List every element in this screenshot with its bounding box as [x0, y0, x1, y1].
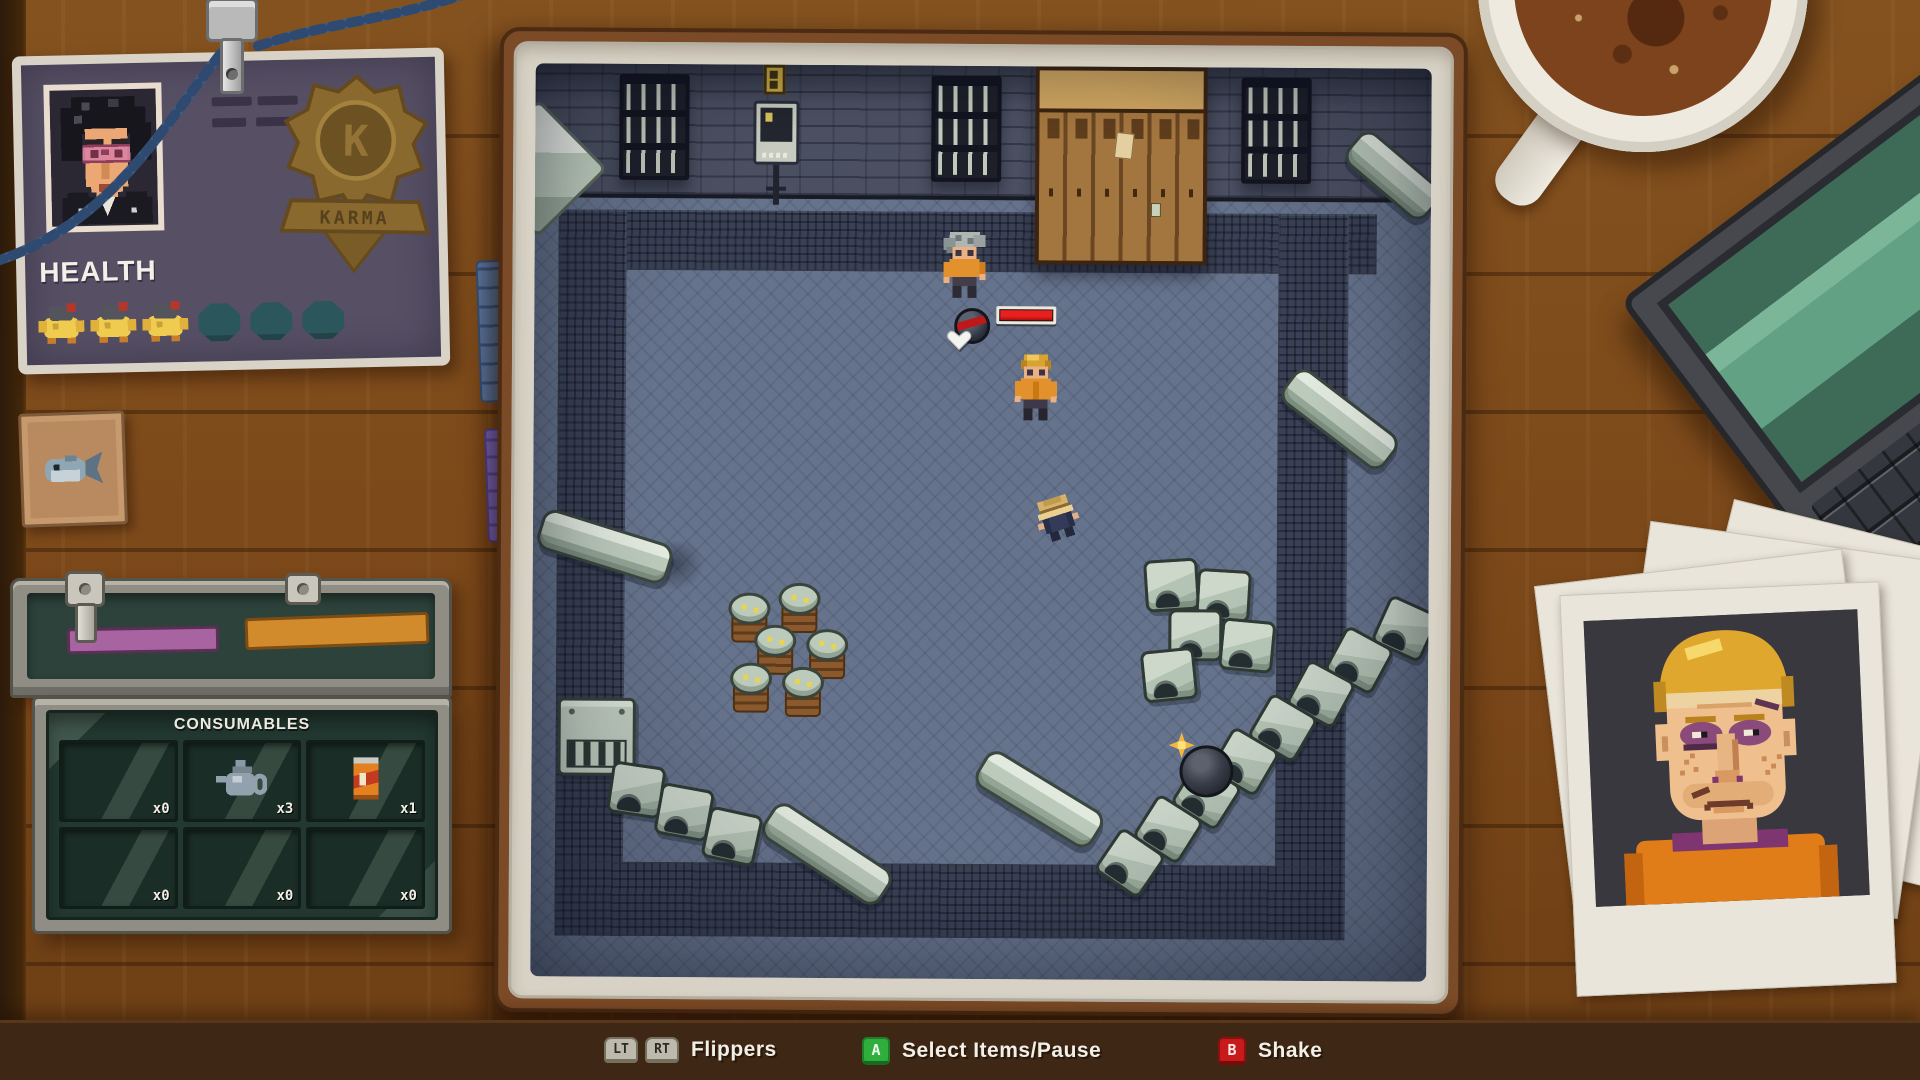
polaroid-target-photo: [1559, 581, 1896, 997]
security-monitor: [753, 101, 799, 165]
crate: [1218, 617, 1277, 674]
prison-wall: [535, 63, 1432, 202]
hint-select: A Select Items/Pause: [862, 1037, 1101, 1065]
inventory-slot-soda[interactable]: x1: [306, 740, 425, 822]
prisoner-blond-sprite: [1012, 354, 1060, 420]
b-button-label: B: [1227, 1041, 1236, 1059]
rt-button-label: RT: [654, 1042, 670, 1057]
locker-note-small: [1151, 203, 1161, 217]
game-viewport[interactable]: [530, 63, 1432, 981]
barred-window: [931, 76, 1002, 182]
case-latch: [285, 573, 321, 605]
gutter-left: [554, 209, 626, 935]
consumables-case: CONSUMABLES x0 x3 x1 x0: [8, 570, 464, 942]
crate: [700, 805, 764, 867]
bomb: [1179, 745, 1233, 797]
inventory-slot[interactable]: x0: [59, 740, 178, 822]
gutter-right: [1274, 214, 1348, 940]
inventory-title: CONSUMABLES: [46, 716, 438, 734]
inventory-grid: x0 x3 x1 x0 x0: [59, 740, 425, 909]
a-button: A: [862, 1037, 890, 1065]
hint-shake-label: Shake: [1258, 1039, 1322, 1063]
fish-icon: [38, 440, 110, 494]
barred-window: [1241, 78, 1312, 184]
slot-count: x0: [153, 888, 170, 904]
monitor-pole: [773, 165, 779, 205]
barred-window: [619, 74, 690, 180]
health-label: HEALTH: [39, 255, 157, 289]
slot-count: x3: [276, 801, 293, 817]
polaroid-stack: [1540, 538, 1920, 1008]
slot-count: x0: [153, 801, 170, 817]
health-empty-slot: [198, 303, 241, 342]
slot-count: x0: [276, 888, 293, 904]
bumper-bottom-center: [970, 746, 1108, 853]
teapot-icon: [216, 759, 268, 799]
barrel: [730, 662, 772, 716]
target-portrait-art: [1584, 609, 1870, 907]
case-lid: [10, 578, 452, 698]
rt-button: RT: [645, 1037, 679, 1063]
badge-banner-text: KARMA: [319, 208, 389, 230]
a-button-label: A: [871, 1041, 880, 1059]
game-screenshot-root: K KARMA HEALTH: [0, 0, 1920, 1080]
badge-clip: [206, 0, 258, 98]
b-button: B: [1218, 1037, 1246, 1065]
case-interior: CONSUMABLES x0 x3 x1 x0: [46, 710, 438, 920]
wall-sign: [764, 65, 786, 95]
health-chick-icon: [142, 300, 189, 343]
inventory-slot[interactable]: x0: [306, 827, 425, 909]
guard-sprite: [1027, 488, 1086, 545]
heart-icon: [946, 328, 972, 352]
pinball-board: [494, 27, 1468, 1018]
hint-flippers: LT RT Flippers: [604, 1037, 777, 1063]
lt-button-label: LT: [613, 1042, 629, 1057]
bomb-fuse-spark: [1169, 732, 1195, 758]
hint-bar: LT RT Flippers A Select Items/Pause B Sh…: [0, 1020, 1920, 1080]
lockers: [1035, 66, 1208, 265]
case-latch-tongue: [75, 603, 97, 643]
health-row: [38, 301, 39, 349]
enemy-health-fill: [1000, 310, 1052, 320]
case-body: CONSUMABLES x0 x3 x1 x0: [32, 696, 452, 934]
inventory-slot-teapot[interactable]: x3: [183, 740, 302, 822]
slot-count: x1: [400, 801, 417, 817]
inventory-slot[interactable]: x0: [183, 827, 302, 909]
hint-shake: B Shake: [1218, 1037, 1322, 1065]
target-photo: [1584, 609, 1870, 907]
player-portrait: [43, 82, 164, 232]
health-chick-icon: [38, 302, 85, 345]
locker-note: [1114, 132, 1135, 160]
barrel: [782, 667, 824, 721]
case-latch: [65, 571, 105, 607]
health-chick-icon: [90, 301, 137, 344]
inventory-slot[interactable]: x0: [59, 827, 178, 909]
card-fine-print: [212, 97, 253, 140]
player-portrait-art: [49, 89, 158, 227]
coffee-surface: [1514, 0, 1772, 116]
health-empty-slot: [250, 302, 293, 341]
lt-button: LT: [604, 1037, 638, 1063]
crate: [1143, 557, 1200, 612]
parcel-item[interactable]: [18, 410, 128, 528]
orange-tray: [244, 612, 429, 650]
soda-can-icon: [350, 757, 382, 801]
enemy-health-bar: [996, 306, 1056, 324]
karma-badge: K KARMA: [278, 71, 433, 279]
hint-select-label: Select Items/Pause: [902, 1039, 1101, 1063]
hint-flippers-label: Flippers: [691, 1038, 777, 1062]
crate: [1140, 647, 1199, 704]
prisoner-grayhair-sprite: [940, 232, 988, 298]
gutter-bottom: [554, 861, 1344, 940]
slot-count: x0: [400, 888, 417, 904]
health-empty-slot: [302, 301, 345, 340]
badge-letter: K: [343, 116, 370, 166]
